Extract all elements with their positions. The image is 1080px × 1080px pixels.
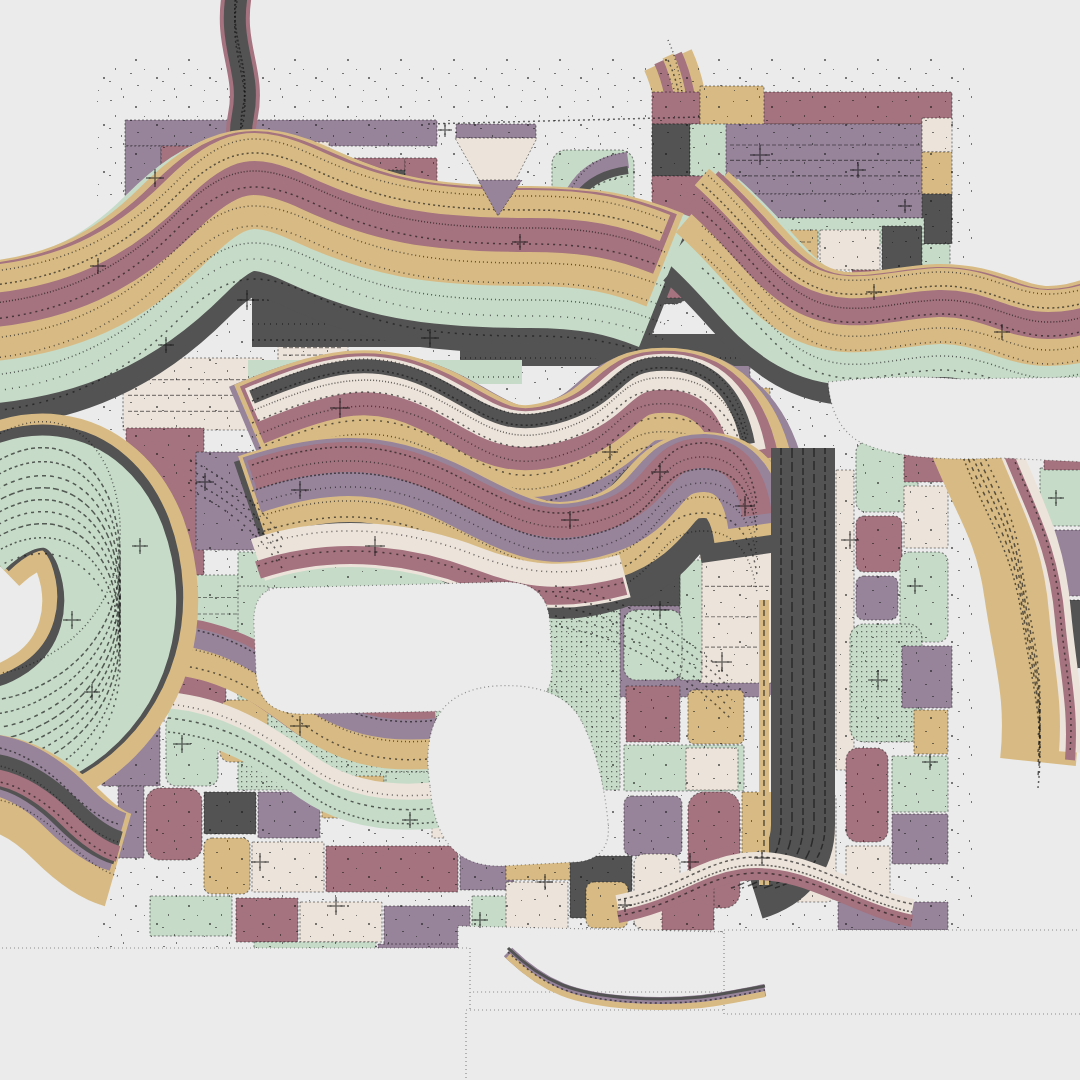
cross-ornament-dot xyxy=(186,743,188,745)
cross-ornament-dot xyxy=(609,456,611,458)
cross-ornament-dot xyxy=(252,299,254,301)
bg-cutout-blob xyxy=(0,948,470,1080)
cross-ornament-dot xyxy=(909,585,911,587)
cross-ornament-dot xyxy=(484,919,486,921)
cross-ornament-dot xyxy=(727,661,729,663)
cross-ornament-dot xyxy=(744,499,746,501)
cross-ornament-dot xyxy=(240,299,242,301)
cross-ornament-dot xyxy=(409,814,411,816)
cross-ornament-dot xyxy=(620,904,622,906)
cross-ornament-dot xyxy=(738,505,740,507)
cross-ornament-dot xyxy=(440,129,442,131)
cross-ornament-dot xyxy=(659,614,661,616)
cross-ornament-dot xyxy=(76,619,78,621)
cross-ornament-dot xyxy=(86,691,88,693)
cross-ornament-dot xyxy=(434,337,436,339)
cross-ornament-dot xyxy=(654,609,656,611)
cross-ornament-dot xyxy=(246,293,248,295)
cross-ornament-dot xyxy=(514,241,516,243)
cross-ornament-dot xyxy=(873,286,875,288)
glitch-collage xyxy=(0,0,1080,1080)
cross-ornament-dot xyxy=(929,766,931,768)
cross-ornament-dot xyxy=(414,819,416,821)
cross-ornament-dot xyxy=(871,679,873,681)
cross-ornament-dot xyxy=(91,686,93,688)
cross-ornament-dot xyxy=(170,344,172,346)
cross-ornament-dot xyxy=(429,332,431,334)
cross-ornament-dot xyxy=(66,619,68,621)
cross-ornament-dot xyxy=(659,466,661,468)
cross-ornament-dot xyxy=(154,182,156,184)
cross-ornament-dot xyxy=(335,910,337,912)
cross-ornament-dot xyxy=(609,446,611,448)
cross-ornament-dot xyxy=(304,489,306,491)
cross-ornament-dot xyxy=(139,540,141,542)
cross-ornament-dot xyxy=(409,824,411,826)
cross-ornament-dot xyxy=(92,265,94,267)
cross-ornament-dot xyxy=(689,866,691,868)
cross-ornament-dot xyxy=(759,160,761,162)
cross-ornament-dot xyxy=(624,908,626,910)
cross-ornament-dot xyxy=(654,471,656,473)
cross-ornament-dot xyxy=(71,624,73,626)
cross-ornament-dot xyxy=(345,407,347,409)
cross-ornament-dot xyxy=(544,876,546,878)
cross-ornament-dot xyxy=(176,743,178,745)
cross-ornament-dot xyxy=(1006,331,1008,333)
cross-ornament-dot xyxy=(209,481,211,483)
cross-ornament-dot xyxy=(564,519,566,521)
cross-ornament-dot xyxy=(340,905,342,907)
cross-ornament-dot xyxy=(479,914,481,916)
cross-ornament-dot xyxy=(444,133,446,135)
cross-ornament-dot xyxy=(862,169,864,171)
cross-ornament-dot xyxy=(765,154,767,156)
cross-ornament-dot xyxy=(71,614,73,616)
cross-ornament-dot xyxy=(1055,502,1057,504)
cross-ornament-dot xyxy=(878,291,880,293)
cross-ornament-dot xyxy=(264,861,266,863)
cross-ornament-dot xyxy=(335,900,337,902)
cross-ornament-dot xyxy=(134,545,136,547)
cross-ornament-dot xyxy=(664,609,666,611)
cross-ornament-dot xyxy=(293,725,295,727)
cross-ornament-dot xyxy=(849,534,851,536)
cross-ornament-dot xyxy=(908,205,910,207)
cross-ornament-dot xyxy=(429,342,431,344)
cross-ornament-dot xyxy=(868,291,870,293)
cross-ornament-dot xyxy=(919,585,921,587)
cross-ornament-dot xyxy=(761,862,763,864)
cross-ornament-dot xyxy=(549,881,551,883)
artwork-canvas xyxy=(0,0,1080,1080)
cross-ornament-dot xyxy=(149,177,151,179)
cross-ornament-dot xyxy=(877,673,879,675)
cross-ornament-dot xyxy=(904,201,906,203)
cross-ornament-dot xyxy=(854,539,856,541)
cross-ornament-dot xyxy=(924,761,926,763)
cross-ornament-dot xyxy=(305,725,307,727)
cross-ornament-dot xyxy=(374,551,376,553)
cross-ornament-dot xyxy=(684,861,686,863)
cross-ornament-dot xyxy=(914,590,916,592)
cross-ornament-dot xyxy=(368,545,370,547)
cross-ornament-dot xyxy=(199,481,201,483)
cross-ornament-dot xyxy=(759,148,761,150)
cross-ornament-dot xyxy=(474,919,476,921)
cross-ornament-dot xyxy=(844,539,846,541)
cross-ornament-dot xyxy=(246,305,248,307)
cross-ornament-dot xyxy=(448,129,450,131)
cross-ornament-dot xyxy=(160,344,162,346)
cross-ornament-dot xyxy=(519,246,521,248)
cross-ornament-dot xyxy=(254,861,256,863)
cross-ornament-dot xyxy=(294,489,296,491)
cross-ornament-dot xyxy=(766,857,768,859)
cross-ornament-dot xyxy=(929,756,931,758)
cross-ornament-dot xyxy=(694,861,696,863)
cross-ornament-dot xyxy=(424,337,426,339)
cross-ornament-dot xyxy=(479,924,481,926)
cross-ornament-dot xyxy=(715,661,717,663)
cross-ornament-dot xyxy=(721,667,723,669)
cross-ornament-dot xyxy=(628,904,630,906)
cross-ornament-dot xyxy=(259,856,261,858)
bg-cutout-blob xyxy=(724,930,1080,1014)
cross-ornament-dot xyxy=(97,260,99,262)
cross-ornament-dot xyxy=(524,241,526,243)
cross-ornament-dot xyxy=(721,655,723,657)
cross-ornament-dot xyxy=(753,154,755,156)
cross-ornament-dot xyxy=(159,177,161,179)
cross-ornament-dot xyxy=(333,407,335,409)
cross-ornament-dot xyxy=(204,486,206,488)
cross-ornament-dot xyxy=(444,125,446,127)
bg-cutout-blob xyxy=(466,1010,1080,1080)
cross-ornament-dot xyxy=(1001,336,1003,338)
cross-ornament-dot xyxy=(849,544,851,546)
cross-ornament-dot xyxy=(259,866,261,868)
cross-ornament-dot xyxy=(404,819,406,821)
cross-ornament-dot xyxy=(374,539,376,541)
cross-ornament-dot xyxy=(604,451,606,453)
cross-ornament-dot xyxy=(996,331,998,333)
cross-ornament-dot xyxy=(900,205,902,207)
bg-cutout-blob xyxy=(458,926,730,992)
cross-ornament-dot xyxy=(165,339,167,341)
cross-ornament-dot xyxy=(873,296,875,298)
cross-ornament-dot xyxy=(154,172,156,174)
cross-ornament-dot xyxy=(299,731,301,733)
cross-ornament-dot xyxy=(624,900,626,902)
cross-ornament-dot xyxy=(659,476,661,478)
cross-ornament-dot xyxy=(877,685,879,687)
cross-ornament-dot xyxy=(934,761,936,763)
cross-ornament-dot xyxy=(539,881,541,883)
cross-ornament-dot xyxy=(761,852,763,854)
cross-ornament-dot xyxy=(857,164,859,166)
cross-ornament-dot xyxy=(659,604,661,606)
cross-ornament-dot xyxy=(857,174,859,176)
cross-ornament-dot xyxy=(569,514,571,516)
cross-ornament-dot xyxy=(144,545,146,547)
cross-ornament-dot xyxy=(883,679,885,681)
cross-ornament-dot xyxy=(569,524,571,526)
cross-ornament-dot xyxy=(339,401,341,403)
cross-ornament-dot xyxy=(852,169,854,171)
cross-ornament-dot xyxy=(97,270,99,272)
cross-ornament-dot xyxy=(299,484,301,486)
cross-ornament-dot xyxy=(1050,497,1052,499)
cross-ornament-dot xyxy=(339,413,341,415)
cross-ornament-dot xyxy=(1055,492,1057,494)
cross-ornament-dot xyxy=(1060,497,1062,499)
cross-ornament-dot xyxy=(380,545,382,547)
cross-ornament-dot xyxy=(181,748,183,750)
cross-ornament-dot xyxy=(614,451,616,453)
cross-ornament-dot xyxy=(756,857,758,859)
cross-ornament-dot xyxy=(299,494,301,496)
cross-ornament-dot xyxy=(165,349,167,351)
cross-ornament-dot xyxy=(1001,326,1003,328)
cross-ornament-dot xyxy=(91,696,93,698)
cross-ornament-dot xyxy=(102,265,104,267)
cross-ornament-dot xyxy=(664,471,666,473)
cross-ornament-dot xyxy=(96,691,98,693)
cross-ornament-dot xyxy=(914,580,916,582)
cross-ornament-dot xyxy=(744,511,746,513)
cross-ornament-dot xyxy=(574,519,576,521)
cross-ornament-dot xyxy=(904,209,906,211)
cross-ornament-dot xyxy=(519,236,521,238)
cross-ornament-dot xyxy=(330,905,332,907)
cross-ornament-dot xyxy=(181,738,183,740)
cross-ornament-dot xyxy=(750,505,752,507)
cross-ornament-dot xyxy=(544,886,546,888)
cross-ornament-dot xyxy=(139,550,141,552)
cross-ornament-dot xyxy=(204,476,206,478)
cross-ornament-dot xyxy=(299,719,301,721)
cross-ornament-dot xyxy=(689,856,691,858)
